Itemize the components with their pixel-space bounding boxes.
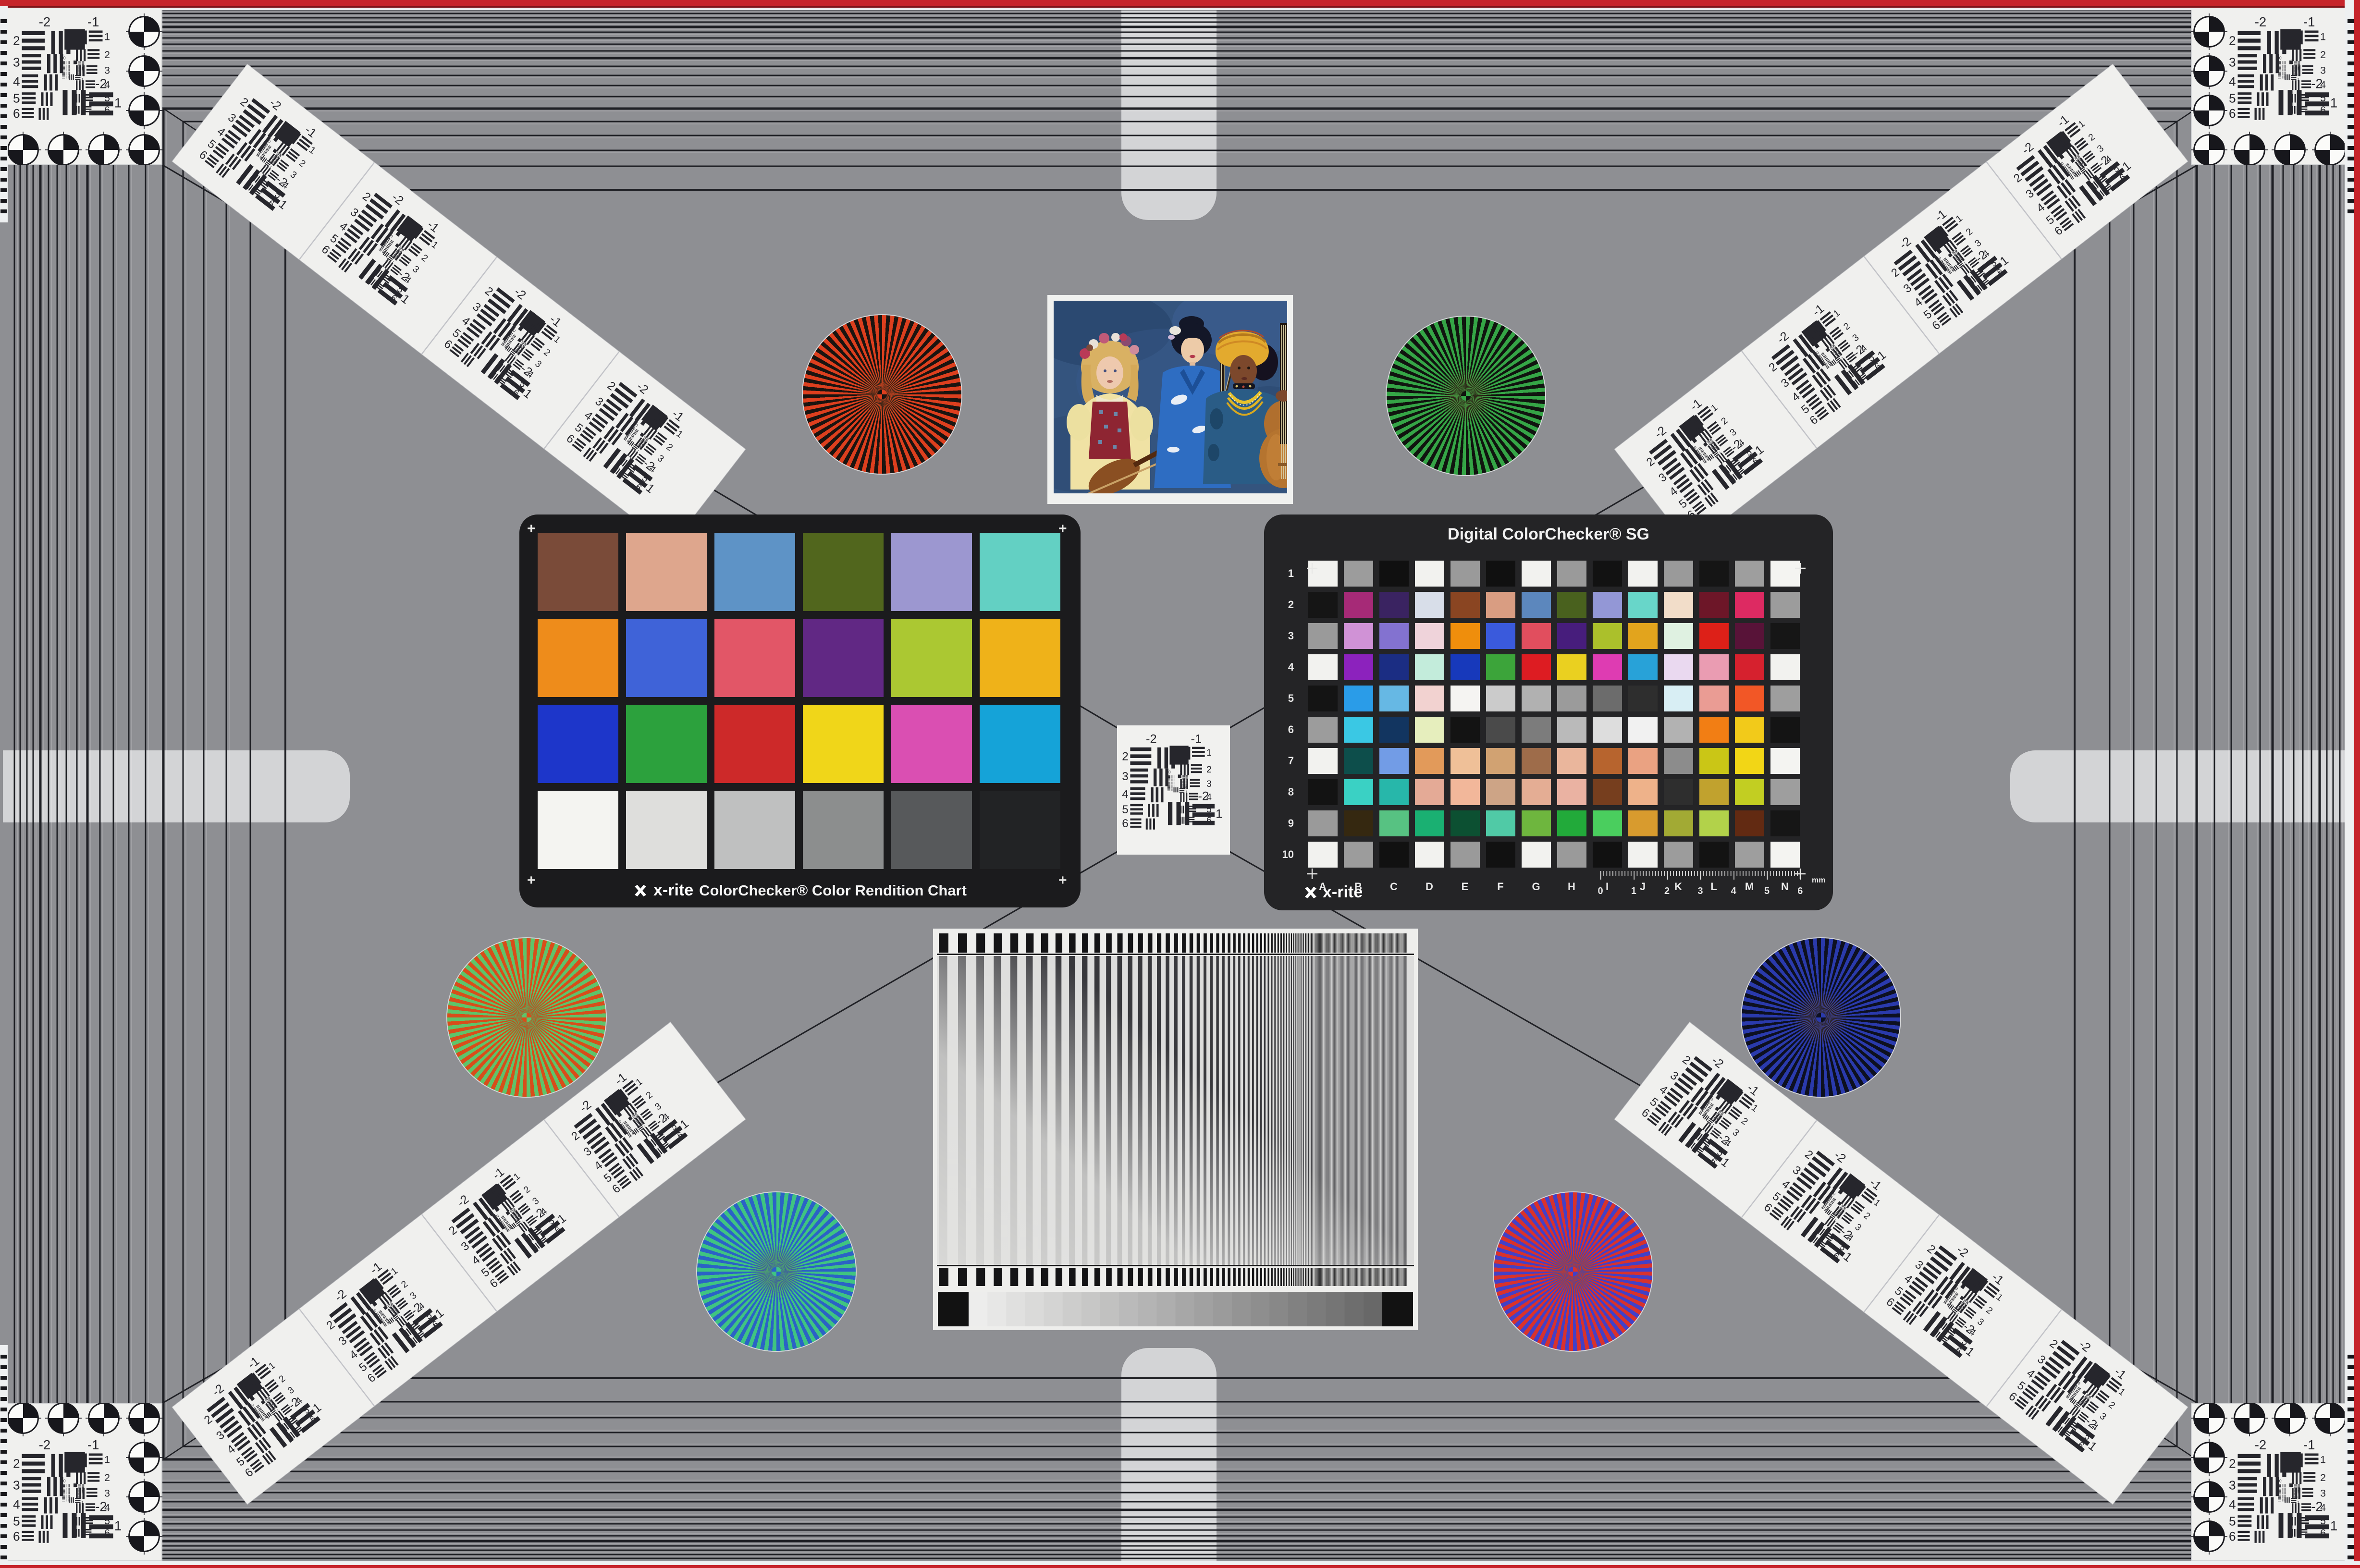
camera-test-chart-scene: -2-1234561234560101-21 <box>0 0 2360 1568</box>
edge-registration-ticks <box>0 0 2360 1568</box>
